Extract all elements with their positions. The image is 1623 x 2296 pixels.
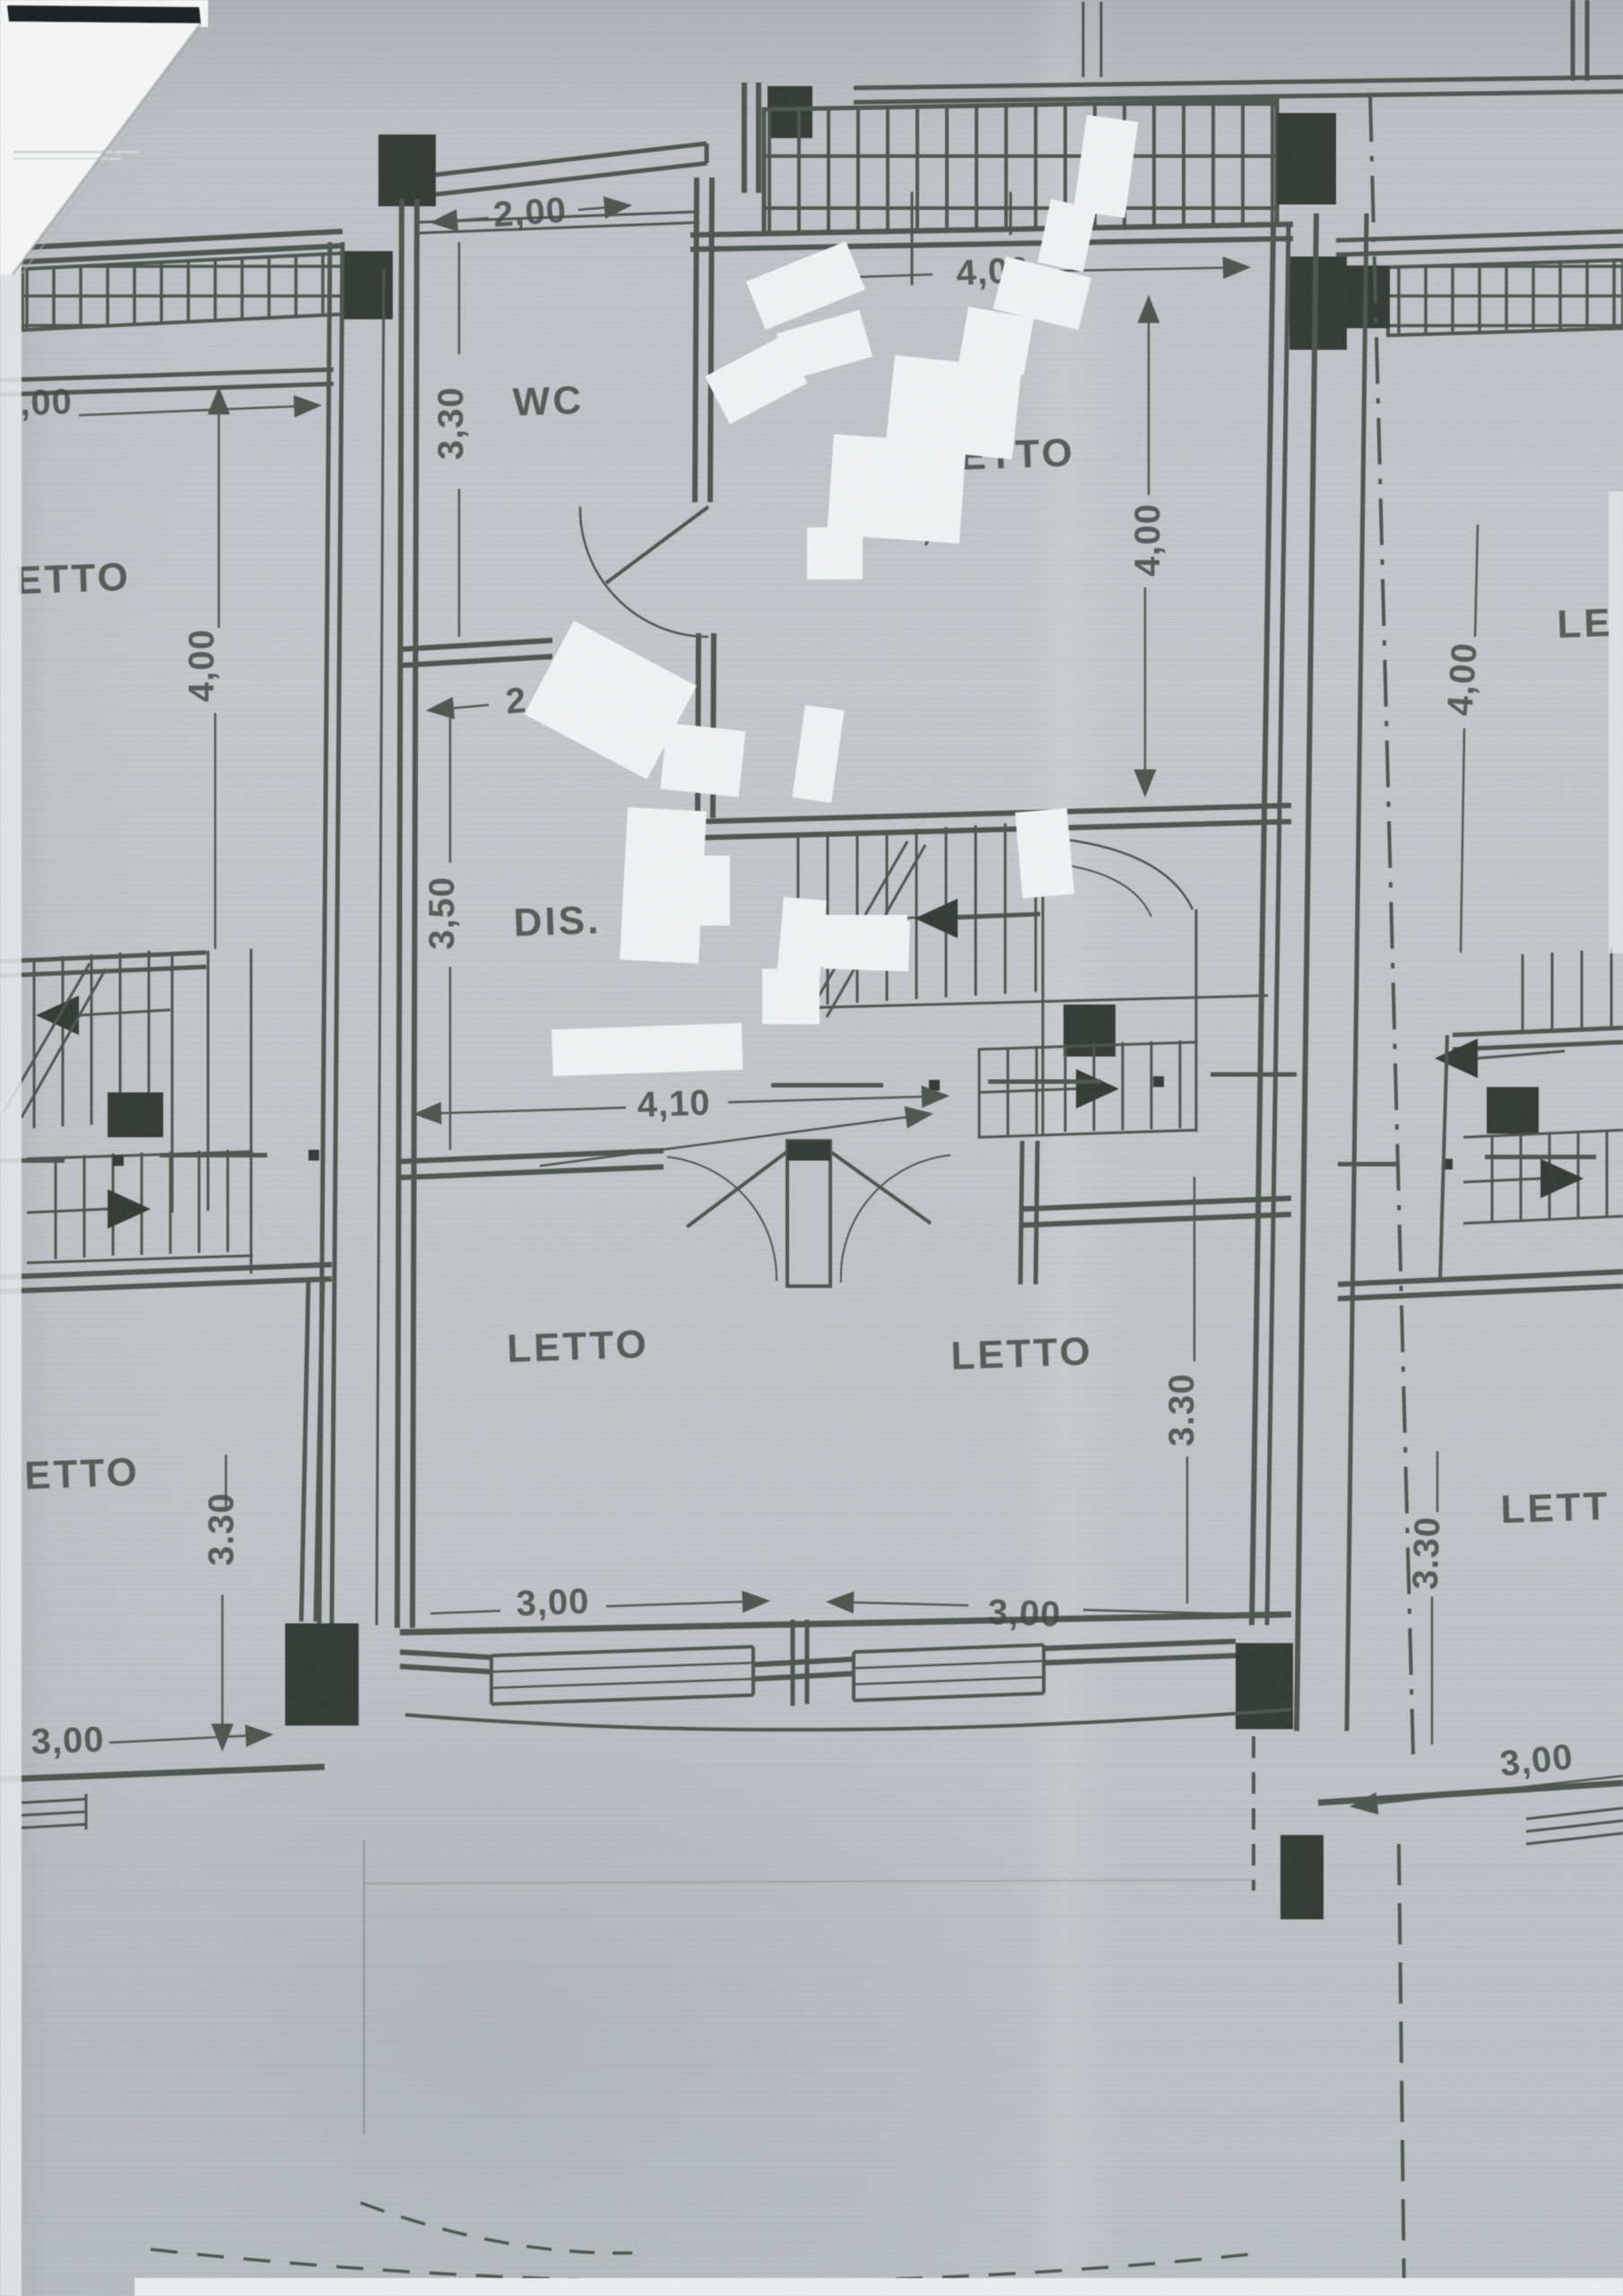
dim-neighbor-left-height: 4,00 (182, 629, 221, 702)
dim-neighbor-left-partial: ,00 (19, 382, 73, 423)
floor-plan-drawing: WC LETTO DIS. LETTO LETTO ETTO ETTO LE L… (0, 0, 1623, 2296)
redaction-marks (525, 115, 1139, 1076)
dim-letto-bottom-right-width: 3,00 (987, 1593, 1062, 1635)
stair-up-arrow-icon (915, 899, 958, 938)
dim-dis-width: 4,10 (637, 1083, 711, 1126)
dim-hall-height: 3,50 (422, 876, 462, 950)
room-label-letto-bottom-left: LETTO (506, 1322, 649, 1370)
room-label-neighbor-right-bottom: LETT (1500, 1484, 1611, 1532)
dim-letto-bottom-left-width: 3,00 (516, 1582, 590, 1624)
window-grid-top-right (1336, 231, 1623, 335)
staircase-left-neighbor (0, 949, 359, 1830)
scanned-page: WC LETTO DIS. LETTO LETTO ETTO ETTO LE L… (0, 0, 1623, 2296)
room-label-wc: WC (512, 378, 585, 425)
dim-neighbor-right-height: 4,00 (1440, 641, 1485, 717)
room-label-neighbor-left-bottom: ETTO (23, 1450, 140, 1498)
folded-corner (0, 0, 208, 276)
bottom-windows-center (400, 1614, 1293, 1891)
room-label-letto-bottom-right: LETTO (950, 1329, 1093, 1378)
dim-neighbor-left-width: 3,00 (30, 1720, 105, 1762)
dim-neighbor-right-width: 3,00 (1498, 1737, 1575, 1784)
dim-neighbor-left-bottom-height: 3.30 (202, 1492, 241, 1566)
dim-neighbor-right-bottom-height: 3.30 (1406, 1516, 1448, 1590)
dim-wc-height: 3,30 (431, 387, 471, 460)
stair-down-arrow-icon (1076, 1069, 1119, 1109)
stair-down-arrow-icon (108, 1189, 151, 1229)
window-grid-top-left (0, 231, 393, 395)
room-label-dis: DIS. (513, 898, 602, 944)
room-label-neighbor-right-top: LE (1557, 601, 1614, 647)
room-label-neighbor-left-top: ETTO (14, 555, 131, 603)
dim-letto-bottom-right-height: 3.30 (1162, 1373, 1202, 1447)
stair-up-arrow-icon (1435, 1039, 1478, 1078)
dim-letto-top-height: 4,00 (1128, 503, 1167, 577)
dim-wc-width: 2,00 (492, 190, 568, 235)
